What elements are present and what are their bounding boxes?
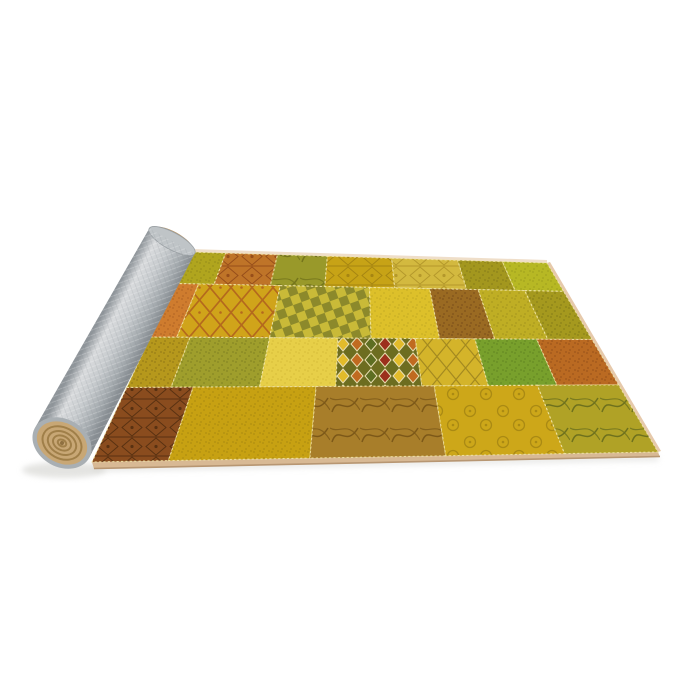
rug-patch-texture bbox=[336, 338, 422, 386]
product-figure bbox=[0, 0, 700, 700]
rug-patch-texture bbox=[310, 386, 446, 458]
rug-patch-texture bbox=[325, 256, 395, 288]
product-photo bbox=[0, 0, 700, 700]
rug-patch-texture bbox=[270, 286, 372, 339]
rug-patch-texture bbox=[370, 287, 440, 338]
rug-patch-texture bbox=[168, 387, 316, 461]
rug-patch-texture bbox=[270, 255, 327, 287]
photo-stage bbox=[0, 0, 700, 700]
rug-patch-texture bbox=[260, 338, 338, 387]
rug-patch-texture bbox=[392, 258, 467, 289]
